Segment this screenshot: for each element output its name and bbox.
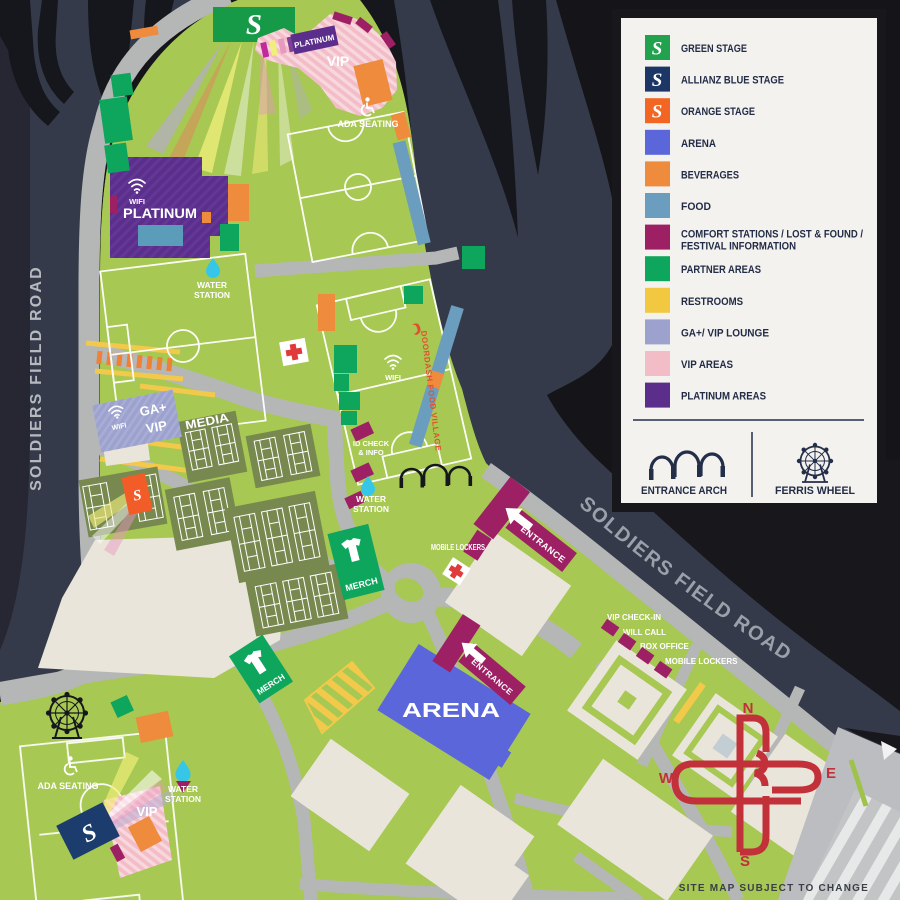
- svg-text:BEVERAGES: BEVERAGES: [681, 169, 739, 181]
- svg-text:VIP: VIP: [137, 804, 158, 819]
- svg-text:S: S: [246, 9, 262, 41]
- svg-text:VIP AREAS: VIP AREAS: [681, 359, 733, 371]
- svg-text:SITE MAP SUBJECT TO CHANGE: SITE MAP SUBJECT TO CHANGE: [679, 883, 869, 894]
- svg-text:ENTRANCE ARCH: ENTRANCE ARCH: [641, 485, 727, 497]
- svg-text:ADA SEATING: ADA SEATING: [337, 119, 398, 129]
- svg-text:WIFI: WIFI: [129, 197, 145, 206]
- svg-text:E: E: [826, 765, 836, 782]
- svg-text:WATER: WATER: [356, 494, 386, 504]
- svg-text:S: S: [652, 39, 663, 60]
- svg-text:VIP CHECK-IN: VIP CHECK-IN: [607, 613, 661, 622]
- svg-text:FOOD: FOOD: [681, 201, 711, 213]
- svg-text:ADA SEATING: ADA SEATING: [37, 781, 98, 791]
- svg-text:S: S: [652, 70, 663, 91]
- svg-text:COMFORT STATIONS / LOST & FOUN: COMFORT STATIONS / LOST & FOUND /: [681, 229, 863, 241]
- svg-text:STATION: STATION: [353, 504, 389, 514]
- svg-text:BOX OFFICE: BOX OFFICE: [640, 642, 690, 651]
- svg-text:STATION: STATION: [194, 290, 230, 300]
- svg-text:WIFI: WIFI: [385, 373, 401, 382]
- svg-text:ARENA: ARENA: [402, 700, 500, 722]
- svg-text:STATION: STATION: [165, 794, 201, 804]
- svg-text:ORANGE STAGE: ORANGE STAGE: [681, 106, 755, 118]
- svg-text:PLATINUM AREAS: PLATINUM AREAS: [681, 391, 766, 403]
- svg-text:FERRIS WHEEL: FERRIS WHEEL: [775, 485, 855, 497]
- svg-text:MOBILE LOCKERS: MOBILE LOCKERS: [431, 543, 485, 552]
- svg-text:S: S: [740, 853, 750, 870]
- svg-text:GREEN STAGE: GREEN STAGE: [681, 43, 747, 55]
- svg-text:ARENA: ARENA: [681, 138, 716, 150]
- svg-text:PARTNER AREAS: PARTNER AREAS: [681, 264, 761, 276]
- svg-text:WILL CALL: WILL CALL: [623, 628, 666, 637]
- svg-text:WATER: WATER: [168, 784, 198, 794]
- svg-text:N: N: [743, 700, 754, 717]
- svg-text:MOBILE LOCKERS: MOBILE LOCKERS: [665, 657, 738, 666]
- svg-text:VIP: VIP: [327, 53, 350, 69]
- svg-text:& INFO: & INFO: [358, 448, 384, 457]
- svg-text:S: S: [652, 102, 663, 123]
- svg-text:RESTROOMS: RESTROOMS: [681, 296, 743, 308]
- svg-text:PLATINUM: PLATINUM: [123, 205, 197, 221]
- svg-text:SOLDIERS FIELD ROAD: SOLDIERS FIELD ROAD: [28, 265, 45, 491]
- svg-text:W: W: [659, 770, 674, 787]
- svg-text:ALLIANZ BLUE STAGE: ALLIANZ BLUE STAGE: [681, 75, 784, 87]
- svg-text:FESTIVAL INFORMATION: FESTIVAL INFORMATION: [681, 241, 796, 253]
- svg-text:GA+/ VIP LOUNGE: GA+/ VIP LOUNGE: [681, 327, 769, 339]
- svg-text:WATER: WATER: [197, 280, 227, 290]
